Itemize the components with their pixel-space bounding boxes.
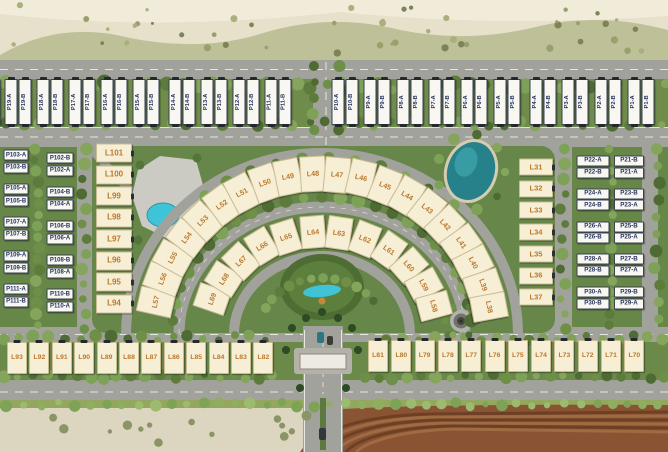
plot-l35[interactable]: L35: [519, 245, 553, 262]
plot-p21-a[interactable]: P21-A: [614, 167, 644, 178]
plot-p9-b[interactable]: P9-B: [378, 79, 391, 125]
plot-label: L69: [207, 292, 218, 306]
plot-label: L78: [442, 353, 454, 360]
plot-l99[interactable]: L99: [96, 187, 132, 206]
plot-l34[interactable]: L34: [519, 224, 553, 241]
plot-p19-b[interactable]: P19-B: [19, 79, 32, 125]
plot-label: P18-B: [54, 94, 60, 110]
plot-p103-a[interactable]: P103-A: [4, 150, 29, 161]
plot-l98[interactable]: L98: [96, 208, 132, 227]
plot-p13-b[interactable]: P13-B: [215, 79, 228, 125]
plot-label: P108-B: [50, 257, 70, 263]
plot-label: P9-B: [381, 95, 387, 108]
plot-label: P21-A: [620, 169, 638, 175]
plot-p107-b[interactable]: P107-B: [4, 229, 29, 240]
plot-label: L36: [530, 272, 543, 280]
plot-label: P29-A: [620, 301, 638, 307]
plot-p11-b[interactable]: P11-B: [279, 79, 292, 125]
plot-p2-a[interactable]: P2-A: [595, 79, 608, 125]
plot-p15-b[interactable]: P15-B: [147, 79, 160, 125]
plot-label: P104-B: [50, 189, 70, 195]
plot-label: L82: [258, 355, 270, 362]
plot-p14-b[interactable]: P14-B: [183, 79, 196, 125]
plot-p10-b[interactable]: P10-B: [346, 79, 359, 125]
plot-label: P11-A: [268, 94, 274, 110]
plot-p24-a[interactable]: P24-A: [577, 188, 610, 199]
plot-p12-b[interactable]: P12-B: [247, 79, 260, 125]
plot-label: P2-A: [598, 95, 604, 108]
plot-label: P10-B: [349, 94, 355, 110]
plot-p106-a[interactable]: P106-A: [47, 233, 74, 244]
plot-label: L58: [429, 299, 439, 313]
plot-p103-b[interactable]: P103-B: [4, 162, 29, 173]
plot-label: P106-A: [50, 236, 70, 242]
plot-label: P107-A: [6, 219, 26, 225]
plot-label: P25-A: [620, 235, 638, 241]
plot-label: L89: [101, 355, 113, 362]
plot-p6-b[interactable]: P6-B: [475, 79, 488, 125]
plot-p16-a[interactable]: P16-A: [101, 79, 114, 125]
plot-label: L91: [56, 355, 68, 362]
plot-l96[interactable]: L96: [96, 251, 132, 270]
plot-label: P9-A: [367, 95, 373, 108]
plot-label: L38: [484, 301, 493, 314]
plot-label: P110-A: [50, 304, 70, 310]
plot-p28-a[interactable]: P28-A: [577, 254, 610, 265]
plot-label: L50: [258, 178, 272, 189]
plot-l85[interactable]: L85: [186, 342, 206, 374]
plot-label: L88: [123, 355, 135, 362]
plot-label: L54: [180, 231, 193, 245]
plot-label: L93: [11, 355, 23, 362]
plot-label: L41: [454, 236, 467, 250]
plot-l77[interactable]: L77: [461, 340, 481, 372]
plot-label: P110-B: [50, 291, 70, 297]
plot-label: P15-A: [136, 94, 142, 110]
plot-p10-a[interactable]: P10-A: [332, 79, 345, 125]
plot-label: L101: [105, 149, 123, 157]
plot-label: L37: [530, 293, 543, 301]
plot-l95[interactable]: L95: [96, 273, 132, 292]
plot-label: P4-B: [547, 95, 553, 108]
plot-label: P22-A: [584, 158, 602, 164]
plot-label: P28-A: [584, 256, 602, 262]
plot-label: P8-B: [414, 95, 420, 108]
plot-label: P12-A: [236, 94, 242, 110]
plot-p22-b[interactable]: P22-B: [577, 167, 610, 178]
plot-p108-a[interactable]: P108-A: [47, 267, 74, 278]
plot-label: L73: [559, 353, 571, 360]
plot-label: L94: [107, 300, 121, 308]
plot-label: L35: [530, 250, 543, 258]
plot-l101[interactable]: L101: [96, 144, 132, 163]
plot-l97[interactable]: L97: [96, 230, 132, 249]
plot-label: L97: [107, 235, 121, 243]
plot-p30-a[interactable]: P30-A: [577, 287, 610, 298]
plot-label: P104-A: [50, 202, 70, 208]
plot-label: L39: [478, 278, 489, 292]
plot-label: L65: [279, 232, 293, 243]
plot-p25-a[interactable]: P25-A: [614, 233, 644, 244]
plot-l70[interactable]: L70: [624, 340, 644, 372]
plot-label: P17-A: [72, 94, 78, 110]
plot-p29-b[interactable]: P29-B: [614, 287, 644, 298]
plot-label: P111-A: [6, 286, 26, 292]
plot-p26-b[interactable]: P26-B: [577, 233, 610, 244]
plot-label: P108-A: [50, 270, 70, 276]
plot-label: P106-B: [50, 223, 70, 229]
plot-label: P4-A: [533, 95, 539, 108]
plot-p7-b[interactable]: P7-B: [443, 79, 456, 125]
plot-p23-b[interactable]: P23-B: [614, 188, 644, 199]
plot-label: P17-B: [86, 94, 92, 110]
plot-p12-a[interactable]: P12-A: [233, 79, 246, 125]
plot-p23-a[interactable]: P23-A: [614, 200, 644, 211]
plot-p6-a[interactable]: P6-A: [461, 79, 474, 125]
plot-label: P7-A: [432, 95, 438, 108]
plot-l86[interactable]: L86: [164, 342, 184, 374]
plot-p7-a[interactable]: P7-A: [429, 79, 442, 125]
plot-p110-a[interactable]: P110-A: [47, 301, 74, 312]
plot-p15-a[interactable]: P15-A: [133, 79, 146, 125]
plot-label: L34: [530, 228, 543, 236]
plot-label: P18-A: [40, 94, 46, 110]
plot-p5-b[interactable]: P5-B: [508, 79, 521, 125]
plot-p8-b[interactable]: P8-B: [411, 79, 424, 125]
plot-label: L53: [196, 214, 210, 228]
plot-label: L87: [146, 355, 158, 362]
plot-label: P103-A: [6, 152, 26, 158]
plot-p104-b[interactable]: P104-B: [47, 187, 74, 198]
plot-p108-b[interactable]: P108-B: [47, 255, 74, 266]
plot-p19-a[interactable]: P19-A: [5, 79, 18, 125]
plot-label: P111-B: [6, 299, 26, 305]
plot-label: P1-A: [631, 95, 637, 108]
plot-label: P14-B: [186, 94, 192, 110]
plot-label: L55: [167, 251, 179, 265]
plot-layer: P19-AP19-BP18-AP18-BP17-AP17-BP16-AP16-B…: [0, 0, 668, 452]
plot-l84[interactable]: L84: [209, 342, 229, 374]
plot-label: P19-A: [8, 94, 14, 110]
plot-l33[interactable]: L33: [519, 202, 553, 219]
plot-label: P5-B: [511, 95, 517, 108]
plot-label: P29-B: [620, 289, 638, 295]
plot-label: L32: [530, 185, 543, 193]
plot-label: P16-B: [118, 94, 124, 110]
plot-label: L75: [512, 353, 524, 360]
plot-label: P102-A: [50, 168, 70, 174]
plot-l64[interactable]: L64: [299, 215, 327, 250]
plot-p17-b[interactable]: P17-B: [83, 79, 96, 125]
plot-label: L77: [465, 353, 477, 360]
plot-p13-a[interactable]: P13-A: [201, 79, 214, 125]
plot-p9-a[interactable]: P9-A: [364, 79, 377, 125]
plot-label: P14-A: [172, 94, 178, 110]
plot-p26-a[interactable]: P26-A: [577, 221, 610, 232]
plot-p11-a[interactable]: P11-A: [265, 79, 278, 125]
plot-p25-b[interactable]: P25-B: [614, 221, 644, 232]
plot-p4-b[interactable]: P4-B: [544, 79, 557, 125]
plot-label: L60: [402, 259, 416, 273]
plot-label: P19-B: [22, 94, 28, 110]
plot-l80[interactable]: L80: [391, 340, 411, 372]
plot-label: L62: [358, 234, 372, 245]
plot-l78[interactable]: L78: [438, 340, 458, 372]
plot-label: P23-A: [620, 202, 638, 208]
plot-label: P30-B: [584, 301, 602, 307]
plot-l88[interactable]: L88: [119, 342, 139, 374]
plot-p28-b[interactable]: P28-B: [577, 265, 610, 276]
plot-label: P24-B: [584, 202, 602, 208]
plot-p106-b[interactable]: P106-B: [47, 221, 74, 232]
plot-l93[interactable]: L93: [7, 342, 27, 374]
plot-label: P6-B: [478, 95, 484, 108]
plot-p111-a[interactable]: P111-A: [4, 284, 29, 295]
plot-label: L66: [255, 240, 269, 253]
plot-label: L81: [372, 353, 384, 360]
plot-l100[interactable]: L100: [96, 165, 132, 184]
plot-p27-a[interactable]: P27-A: [614, 265, 644, 276]
plot-label: L74: [535, 353, 547, 360]
plot-label: L48: [306, 170, 319, 178]
plot-label: L52: [214, 199, 228, 212]
plot-label: L70: [628, 353, 640, 360]
plot-p3-b[interactable]: P3-B: [576, 79, 589, 125]
plot-l36[interactable]: L36: [519, 267, 553, 284]
plot-p29-a[interactable]: P29-A: [614, 298, 644, 309]
plot-p2-b[interactable]: P2-B: [609, 79, 622, 125]
plot-p4-a[interactable]: P4-A: [530, 79, 543, 125]
plot-label: L46: [355, 173, 369, 183]
plot-l73[interactable]: L73: [554, 340, 574, 372]
plot-p102-a[interactable]: P102-A: [47, 165, 74, 176]
plot-l76[interactable]: L76: [485, 340, 505, 372]
plot-l72[interactable]: L72: [578, 340, 598, 372]
plot-label: P103-B: [6, 165, 26, 171]
plot-label: L84: [213, 355, 225, 362]
plot-label: P28-B: [584, 268, 602, 274]
plot-label: P3-A: [565, 95, 571, 108]
plot-p105-a[interactable]: P105-A: [4, 183, 29, 194]
plot-label: P105-B: [6, 198, 26, 204]
plot-l81[interactable]: L81: [368, 340, 388, 372]
plot-l38[interactable]: L38: [469, 291, 509, 323]
plot-p17-a[interactable]: P17-A: [69, 79, 82, 125]
plot-label: L42: [438, 218, 452, 232]
plot-label: P24-A: [584, 191, 602, 197]
plot-p5-a[interactable]: P5-A: [494, 79, 507, 125]
plot-label: L61: [382, 244, 396, 257]
plot-label: L99: [107, 192, 121, 200]
plot-label: P102-B: [50, 155, 70, 161]
plot-label: P15-B: [150, 94, 156, 110]
plot-label: L57: [151, 295, 161, 309]
plot-label: P2-B: [612, 95, 618, 108]
plot-label: P27-B: [620, 256, 638, 262]
plot-label: P27-A: [620, 268, 638, 274]
plot-label: L98: [107, 214, 121, 222]
plot-l82[interactable]: L82: [253, 342, 273, 374]
plot-l71[interactable]: L71: [601, 340, 621, 372]
plot-label: L49: [282, 172, 296, 182]
plot-label: L59: [418, 277, 430, 291]
plot-l31[interactable]: L31: [519, 159, 553, 176]
plot-label: L33: [530, 207, 543, 215]
plot-l79[interactable]: L79: [415, 340, 435, 372]
plot-p109-a[interactable]: P109-A: [4, 250, 29, 261]
plot-label: L31: [530, 163, 543, 171]
plot-p14-a[interactable]: P14-A: [169, 79, 182, 125]
plot-label: L92: [34, 355, 46, 362]
plot-label: L96: [107, 257, 121, 265]
plot-p111-b[interactable]: P111-B: [4, 296, 29, 307]
plot-l83[interactable]: L83: [231, 342, 251, 374]
plot-label: L43: [420, 202, 434, 215]
plot-label: L76: [489, 353, 501, 360]
plot-label: P30-A: [584, 289, 602, 295]
plot-label: L90: [78, 355, 90, 362]
plot-label: P13-B: [218, 94, 224, 110]
plot-p21-b[interactable]: P21-B: [614, 156, 644, 167]
plot-label: P107-B: [6, 232, 26, 238]
plot-label: L64: [306, 228, 319, 236]
plot-l37[interactable]: L37: [519, 289, 553, 306]
plot-label: L56: [157, 272, 168, 286]
plot-label: P21-B: [620, 158, 638, 164]
plot-label: P12-B: [250, 94, 256, 110]
plot-label: L100: [105, 171, 123, 179]
plot-p104-a[interactable]: P104-A: [47, 199, 74, 210]
plot-label: L72: [582, 353, 594, 360]
plot-label: P13-A: [204, 94, 210, 110]
plot-l94[interactable]: L94: [96, 294, 132, 313]
plot-label: L63: [333, 229, 346, 238]
plot-l91[interactable]: L91: [52, 342, 72, 374]
plot-p105-b[interactable]: P105-B: [4, 196, 29, 207]
plot-label: P25-B: [620, 223, 638, 229]
plot-l90[interactable]: L90: [74, 342, 94, 374]
plot-label: P26-B: [584, 235, 602, 241]
plot-label: P8-A: [400, 95, 406, 108]
plot-p30-b[interactable]: P30-B: [577, 298, 610, 309]
plot-label: L83: [235, 355, 247, 362]
plot-p1-b[interactable]: P1-B: [642, 79, 655, 125]
plot-unlabeled[interactable]: [0, 79, 1, 125]
plot-p3-a[interactable]: P3-A: [562, 79, 575, 125]
plot-p27-b[interactable]: P27-B: [614, 254, 644, 265]
plot-label: L86: [168, 355, 180, 362]
plot-p107-a[interactable]: P107-A: [4, 217, 29, 228]
plot-label: P10-A: [335, 94, 341, 110]
plot-l75[interactable]: L75: [508, 340, 528, 372]
plot-label: L95: [107, 278, 121, 286]
plot-label: P26-A: [584, 223, 602, 229]
plot-label: P7-B: [446, 95, 452, 108]
plot-label: P23-B: [620, 191, 638, 197]
plot-l32[interactable]: L32: [519, 180, 553, 197]
plot-label: P11-B: [282, 94, 288, 110]
plot-label: P5-A: [497, 95, 503, 108]
plot-p102-b[interactable]: P102-B: [47, 153, 74, 164]
plot-label: L71: [605, 353, 617, 360]
plot-label: P3-B: [579, 95, 585, 108]
plot-p1-a[interactable]: P1-A: [628, 79, 641, 125]
plot-label: L40: [467, 256, 479, 270]
plot-label: L47: [331, 170, 344, 178]
plot-label: P16-A: [104, 94, 110, 110]
plot-label: P1-B: [645, 95, 651, 108]
plot-label: L51: [235, 187, 249, 199]
plot-p18-a[interactable]: P18-A: [37, 79, 50, 125]
plot-label: L80: [395, 353, 407, 360]
plot-label: L67: [234, 254, 248, 268]
plot-label: P22-B: [584, 169, 602, 175]
plot-p18-b[interactable]: P18-B: [51, 79, 64, 125]
plot-label: P109-A: [6, 253, 26, 259]
plot-p22-a[interactable]: P22-A: [577, 156, 610, 167]
plot-p110-b[interactable]: P110-B: [47, 289, 74, 300]
site-master-plan: P19-AP19-BP18-AP18-BP17-AP17-BP16-AP16-B…: [0, 0, 668, 452]
plot-label: L85: [190, 355, 202, 362]
plot-label: L44: [400, 189, 414, 201]
plot-l87[interactable]: L87: [141, 342, 161, 374]
plot-l89[interactable]: L89: [97, 342, 117, 374]
plot-p24-b[interactable]: P24-B: [577, 200, 610, 211]
plot-label: P105-A: [6, 186, 26, 192]
plot-label: L79: [419, 353, 431, 360]
plot-l74[interactable]: L74: [531, 340, 551, 372]
plot-l92[interactable]: L92: [29, 342, 49, 374]
plot-p109-b[interactable]: P109-B: [4, 263, 29, 274]
plot-p8-a[interactable]: P8-A: [397, 79, 410, 125]
plot-p16-b[interactable]: P16-B: [115, 79, 128, 125]
plot-label: P109-B: [6, 265, 26, 271]
plot-label: P6-A: [464, 95, 470, 108]
plot-label: L68: [218, 271, 231, 285]
plot-label: L45: [378, 180, 392, 191]
